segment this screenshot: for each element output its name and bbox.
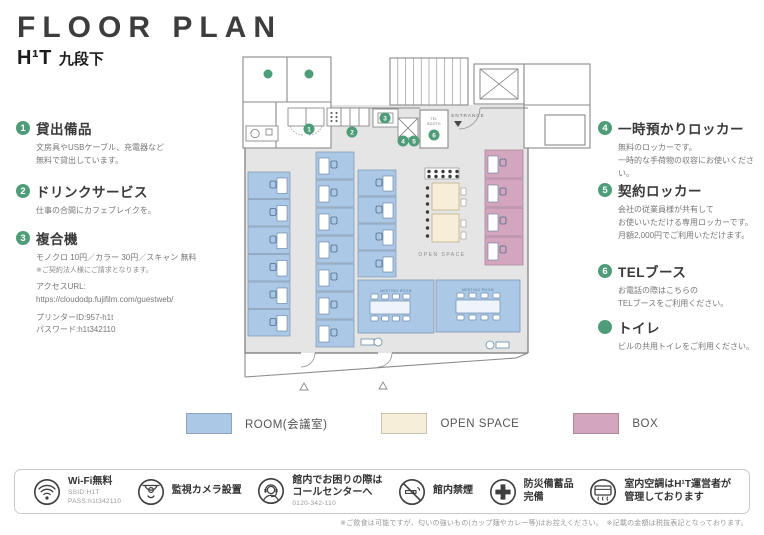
toilet-marker-icon: [264, 70, 273, 79]
info-desc: 会社の従業員様が共有して お使いいただける専用ロッカーです。 月額2,000円で…: [618, 204, 758, 242]
info-desc: 仕事の合間にカフェブレイクを。: [36, 205, 228, 218]
legend-swatch-open-space: [381, 413, 427, 434]
footer-item-no-smoking: 館内禁煙: [398, 478, 473, 506]
marker-6-badge: 6: [598, 264, 612, 278]
counter-drinks: [327, 108, 369, 126]
open-space-label: OPEN SPACE: [418, 252, 465, 258]
open-space-table: [432, 183, 459, 210]
kitchen-sink: [246, 126, 278, 141]
wifi-icon: [33, 478, 61, 506]
tel-booth: TEL BOOTH: [420, 110, 448, 148]
meeting-room-label: MEETING ROOM: [380, 289, 412, 293]
svg-text:4: 4: [401, 138, 405, 145]
footer-item-air-conditioning: 室内空調はH¹T運営者が 管理しております: [589, 478, 731, 506]
info-title: 貸出備品: [36, 118, 92, 138]
staircase: [390, 58, 468, 105]
footer-item-title: 室内空調はH¹T運営者が 管理しております: [624, 479, 731, 504]
legend-item-room: ROOM(会議室): [186, 413, 327, 434]
toilet-badge: [598, 320, 612, 334]
lockers: [398, 118, 418, 138]
info-title: 一時預かりロッカー: [618, 118, 744, 138]
svg-text:1: 1: [307, 126, 311, 133]
svg-text:ENTRANCE: ENTRANCE: [451, 113, 484, 118]
footer-item-title: 館内でお困りの際は コールセンターへ: [292, 475, 382, 500]
footer-notice-bar: Wi-Fi無料 SSID:H1TPASS:h1t342110 監視カメラ設置 館…: [14, 469, 750, 514]
svg-text:TEL: TEL: [430, 117, 437, 121]
legend-swatch-room: [186, 413, 232, 434]
direction-triangle-icon: [379, 382, 387, 389]
location-name: 九段下: [59, 51, 104, 68]
footer-item-call-center: 館内でお困りの際は コールセンターへ 0120-342-110: [257, 475, 382, 509]
footer-item-sub: 0120-342-110: [292, 500, 382, 509]
floor-plan: TEL BOOTH OPEN SPACE MEETING ROOM MEETIN…: [228, 52, 596, 404]
info-title: 契約ロッカー: [618, 180, 702, 200]
marker-3-badge: 3: [16, 231, 30, 245]
brand-line: H¹T九段下: [17, 47, 104, 70]
building-top-right: [524, 64, 590, 148]
footer-item-title: Wi-Fi無料: [68, 476, 121, 489]
footer-item-title: 館内禁煙: [433, 485, 473, 498]
marker-1-badge: 1: [16, 121, 30, 135]
marker-2-badge: 2: [16, 184, 30, 198]
direction-triangle-icon: [300, 383, 308, 390]
page-title: FLOOR PLAN: [17, 11, 282, 45]
marker-5-badge: 5: [598, 183, 612, 197]
ac-icon: [589, 478, 617, 506]
info-desc: ビルの共用トイレをご利用ください。: [618, 341, 758, 354]
first-aid-icon: [489, 478, 517, 506]
svg-text:5: 5: [412, 138, 416, 145]
meeting-rooms: MEETING ROOM MEETING ROOM: [358, 280, 520, 333]
legend-item-box: BOX: [573, 413, 658, 434]
info-item-toilet: トイレ ビルの共用トイレをご利用ください。: [598, 317, 758, 354]
footer-item-emergency-supplies: 防災備蓄品 完備: [489, 478, 574, 506]
meeting-room-label: MEETING ROOM: [462, 288, 494, 292]
info-item-copier: 3 複合機 モノクロ 10円／カラー 30円／スキャン 無料 ※ご契約法人様にご…: [16, 228, 228, 337]
svg-text:6: 6: [432, 132, 436, 139]
footer-item-camera: 監視カメラ設置: [137, 478, 242, 506]
info-item-temp-locker: 4 一時預かりロッカー 無料のロッカーです。 一時的な手荷物の収容にお使いくださ…: [598, 118, 758, 180]
svg-text:3: 3: [383, 115, 387, 122]
brand-logo: H¹T: [17, 47, 52, 69]
info-item-drink: 2 ドリンクサービス 仕事の合間にカフェブレイクを。: [16, 181, 228, 218]
legend-swatch-box: [573, 413, 619, 434]
info-desc: 文房具やUSBケーブル、充電器など 無料で貸出しています。: [36, 142, 228, 168]
info-desc: お電話の際はこちらの TELブースをご利用ください。: [618, 285, 758, 311]
camera-icon: [137, 478, 165, 506]
svg-text:BOOTH: BOOTH: [427, 122, 441, 126]
open-space-table: [432, 214, 459, 242]
info-item-contract-locker: 5 契約ロッカー 会社の従業員様が共有して お使いいただける専用ロッカーです。 …: [598, 180, 758, 242]
no-smoking-icon: [398, 478, 426, 506]
footer-item-title: 防災備蓄品 完備: [524, 479, 574, 504]
info-title: ドリンクサービス: [36, 181, 148, 201]
info-item-tel-booth: 6 TELブース お電話の際はこちらの TELブースをご利用ください。: [598, 261, 758, 311]
info-item-rental: 1 貸出備品 文房具やUSBケーブル、充電器など 無料で貸出しています。: [16, 118, 228, 168]
elevator: [474, 64, 524, 104]
legend: ROOM(会議室) OPEN SPACE BOX: [186, 413, 658, 434]
footer-item-sub: SSID:H1TPASS:h1t342110: [68, 489, 121, 507]
info-desc: 無料のロッカーです。 一時的な手荷物の収容にお使いください。: [618, 142, 758, 180]
footer-item-title: 監視カメラ設置: [172, 485, 242, 498]
svg-text:2: 2: [350, 129, 354, 136]
toilet-marker-icon: [305, 70, 314, 79]
disclaimer-text: ※ご飲食は可能ですが、匂いの強いもの(カップ麺やカレー等)はお控えください。 ※…: [340, 518, 748, 528]
info-desc: モノクロ 10円／カラー 30円／スキャン 無料 ※ご契約法人様にご請求となりま…: [36, 252, 228, 337]
marker-4-badge: 4: [598, 121, 612, 135]
legend-item-open-space: OPEN SPACE: [381, 413, 519, 434]
info-title: TELブース: [618, 261, 686, 281]
footer-item-wifi: Wi-Fi無料 SSID:H1TPASS:h1t342110: [33, 476, 121, 506]
headset-icon: [257, 477, 285, 505]
info-title: トイレ: [618, 317, 660, 337]
info-title: 複合機: [36, 228, 78, 248]
